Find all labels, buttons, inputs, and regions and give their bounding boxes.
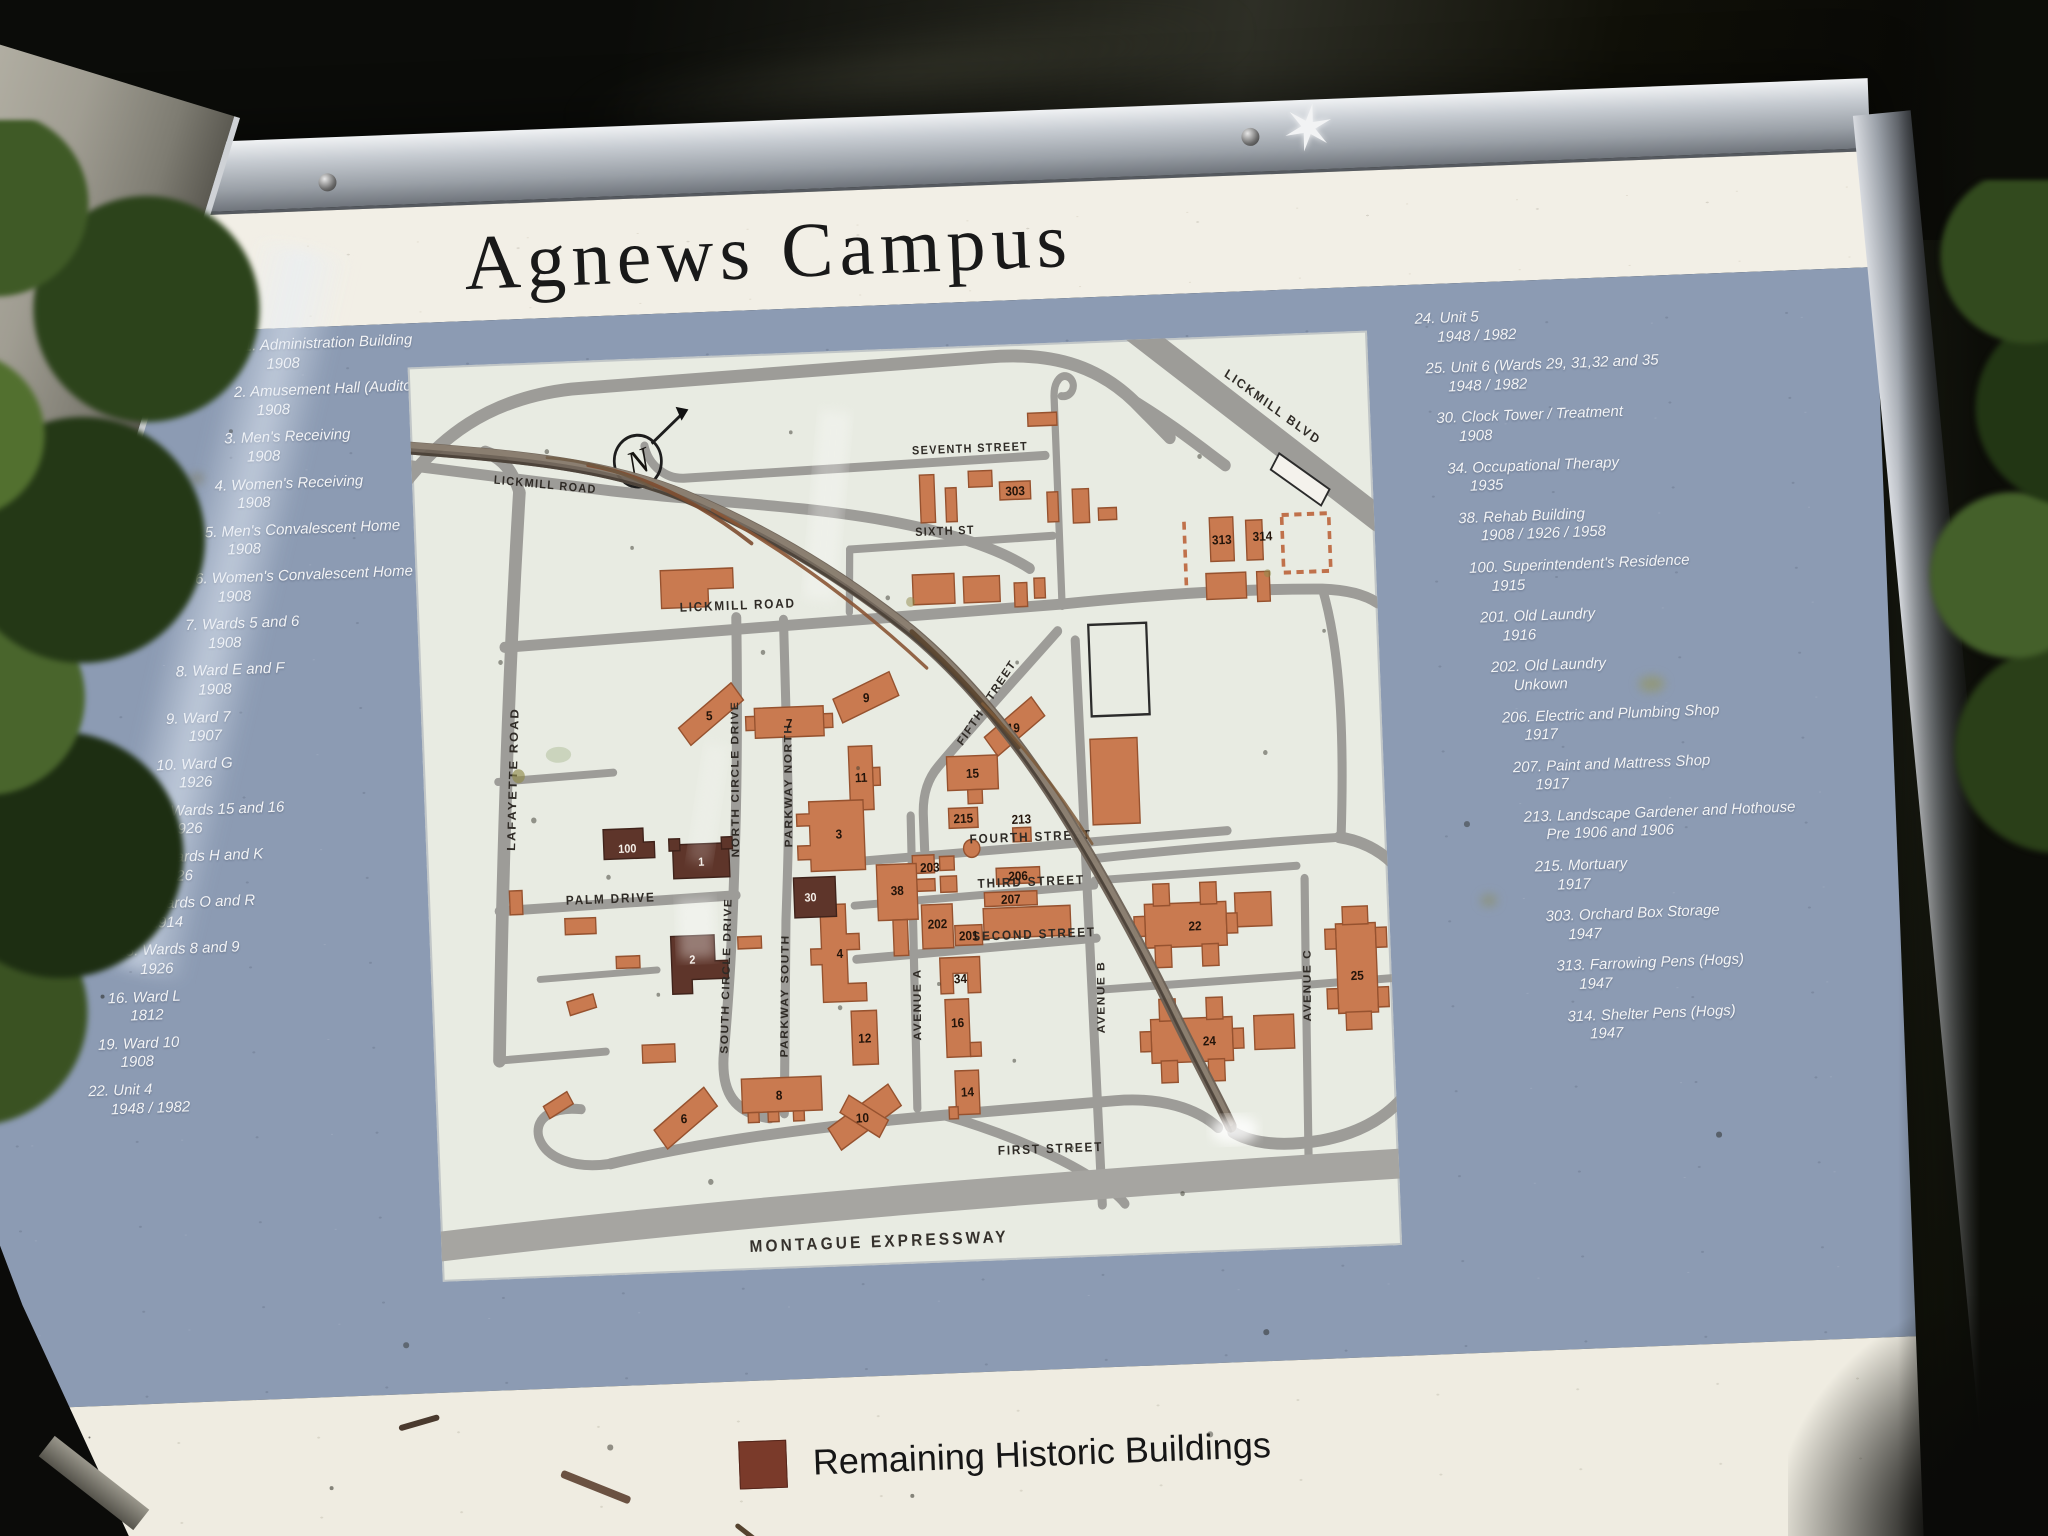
label-25: 25	[1350, 968, 1364, 983]
label-34: 34	[954, 971, 968, 986]
label-206: 206	[1008, 869, 1028, 884]
label-11: 11	[855, 770, 868, 785]
campus-map-svg: LICKMILL BLVD SEVENTH STREET SIXTH ST LI…	[408, 331, 1402, 1282]
building-number: 24.	[1414, 310, 1435, 328]
screw-icon	[1241, 128, 1260, 147]
label-203: 203	[920, 860, 940, 875]
building-number: 201.	[1480, 608, 1510, 626]
label-303: 303	[1005, 484, 1025, 499]
label-313: 313	[1212, 532, 1232, 547]
label-314: 314	[1252, 529, 1272, 544]
legend-list-item: 34. Occupational Therapy 1935	[1447, 445, 1841, 497]
label-215: 215	[953, 811, 973, 826]
building-name: Shelter Pens (Hogs)	[1600, 1002, 1736, 1024]
building-number: 206.	[1502, 708, 1532, 726]
foliage-right	[1818, 180, 2048, 940]
street-label-north-circle-drive: NORTH CIRCLE DRIVE	[730, 701, 742, 858]
legend-list-item: 201. Old Laundry 1916	[1480, 596, 1847, 647]
building-number: 25.	[1425, 360, 1446, 378]
street-label-sixth-st: SIXTH ST	[915, 524, 975, 539]
building-name: Rehab Building	[1483, 505, 1585, 526]
legend-list-item: 313. Farrowing Pens (Hogs) 1947	[1556, 947, 1860, 996]
building-name: Old Laundry	[1524, 655, 1606, 675]
legend-list-item: 303. Orchard Box Storage 1947	[1545, 896, 1858, 945]
label-22: 22	[1188, 919, 1202, 934]
building-number: 38.	[1458, 509, 1479, 527]
label-213: 213	[1011, 812, 1031, 827]
building-number: 303.	[1545, 907, 1575, 925]
map-stains	[505, 569, 1278, 783]
building-name: Unit 5	[1439, 308, 1479, 326]
building-number: 202.	[1491, 658, 1521, 676]
building-number: 34.	[1447, 459, 1468, 477]
legend-list-item: 25. Unit 6 (Wards 29, 31,32 and 35 1948 …	[1425, 345, 1837, 398]
label-100: 100	[618, 843, 637, 856]
building-number: 207.	[1512, 758, 1542, 776]
label-6: 6	[680, 1112, 687, 1127]
label-24: 24	[1203, 1034, 1217, 1049]
label-7: 7	[786, 716, 793, 731]
street-label-first-street: FIRST STREET	[998, 1139, 1104, 1158]
street-label-parkway-north: PARKWAY NORTH	[783, 723, 795, 847]
legend-list-item: 207. Paint and Mattress Shop 1917	[1512, 746, 1852, 796]
legend-label: Remaining Historic Buildings	[812, 1424, 1271, 1484]
building-203	[940, 876, 957, 893]
legend-list-item: 100. Superintendent's Residence 1915	[1469, 545, 1845, 597]
label-207: 207	[1001, 892, 1021, 907]
label-12: 12	[858, 1031, 872, 1046]
twig-fragment	[734, 1523, 761, 1536]
label-201: 201	[959, 928, 979, 943]
building-number: 215.	[1534, 857, 1564, 875]
legend-list-item: 24. Unit 5 1948 / 1982	[1414, 295, 1835, 348]
label-9: 9	[863, 691, 870, 706]
building-number: 314.	[1567, 1007, 1597, 1025]
street-label-lickmill-road: LICKMILL ROAD	[679, 596, 796, 615]
legend-list-item: 30. Clock Tower / Treatment 1908	[1436, 395, 1839, 448]
street-label-parkway-south: PARKWAY SOUTH	[779, 934, 792, 1057]
label-202: 202	[927, 916, 947, 931]
shadow-corner-bottom-right	[1788, 1296, 2048, 1536]
page-title: Agnews Campus	[463, 195, 1075, 308]
label-5: 5	[706, 709, 713, 724]
campus-map: LICKMILL BLVD SEVENTH STREET SIXTH ST LI…	[408, 331, 1402, 1282]
building-3	[796, 800, 866, 872]
label-10: 10	[856, 1111, 870, 1126]
building-list-right: 24. Unit 5 1948 / 1982 25. Unit 6 (Wards…	[1414, 295, 1863, 1063]
legend-list-item: 215. Mortuary 1917	[1534, 846, 1856, 895]
building-name: Mortuary	[1568, 855, 1628, 874]
scratch-mark: ✶	[1275, 88, 1341, 171]
label-38: 38	[890, 883, 904, 898]
building-number: 30.	[1436, 410, 1457, 428]
building-name: Orchard Box Storage	[1579, 902, 1720, 924]
street-label-south-circle-drive: SOUTH CIRCLE DRIVE	[719, 898, 734, 1054]
historic-building-swatch	[738, 1440, 788, 1490]
street-label-avenue-b: AVENUE B	[1096, 961, 1108, 1034]
label-4: 4	[836, 946, 843, 961]
street-label-montague-expressway: MONTAGUE EXPRESSWAY	[749, 1227, 1009, 1256]
street-label-avenue-a: AVENUE A	[912, 968, 924, 1040]
building-number: 313.	[1556, 957, 1586, 975]
building-number: 100.	[1469, 559, 1499, 577]
legend-list-item: 202. Old Laundry Unkown	[1491, 646, 1849, 697]
street-label-avenue-c: AVENUE C	[1302, 949, 1314, 1022]
label-14: 14	[961, 1085, 975, 1100]
legend-list-item: 314. Shelter Pens (Hogs) 1947	[1567, 997, 1862, 1045]
building-name: Old Laundry	[1513, 605, 1595, 625]
legend-list-item: 38. Rehab Building 1908 / 1926 / 1958	[1458, 495, 1843, 547]
building-number: 213.	[1523, 808, 1553, 826]
label-3: 3	[835, 827, 842, 842]
label-16: 16	[951, 1015, 965, 1030]
legend-list-item: 213. Landscape Gardener and Hothouse Pre…	[1523, 796, 1854, 846]
building-name: Occupational Therapy	[1472, 454, 1619, 477]
dirt-specks	[88, 1436, 90, 1438]
label-8: 8	[776, 1088, 783, 1103]
legend-list-item: 206. Electric and Plumbing Shop 1917	[1502, 696, 1851, 747]
photo-scene: ✶ Agnews Campus 1. Administration Buildi…	[0, 0, 2048, 1536]
foliage-left	[0, 120, 340, 1170]
label-15: 15	[966, 766, 980, 781]
label-30: 30	[804, 892, 817, 905]
